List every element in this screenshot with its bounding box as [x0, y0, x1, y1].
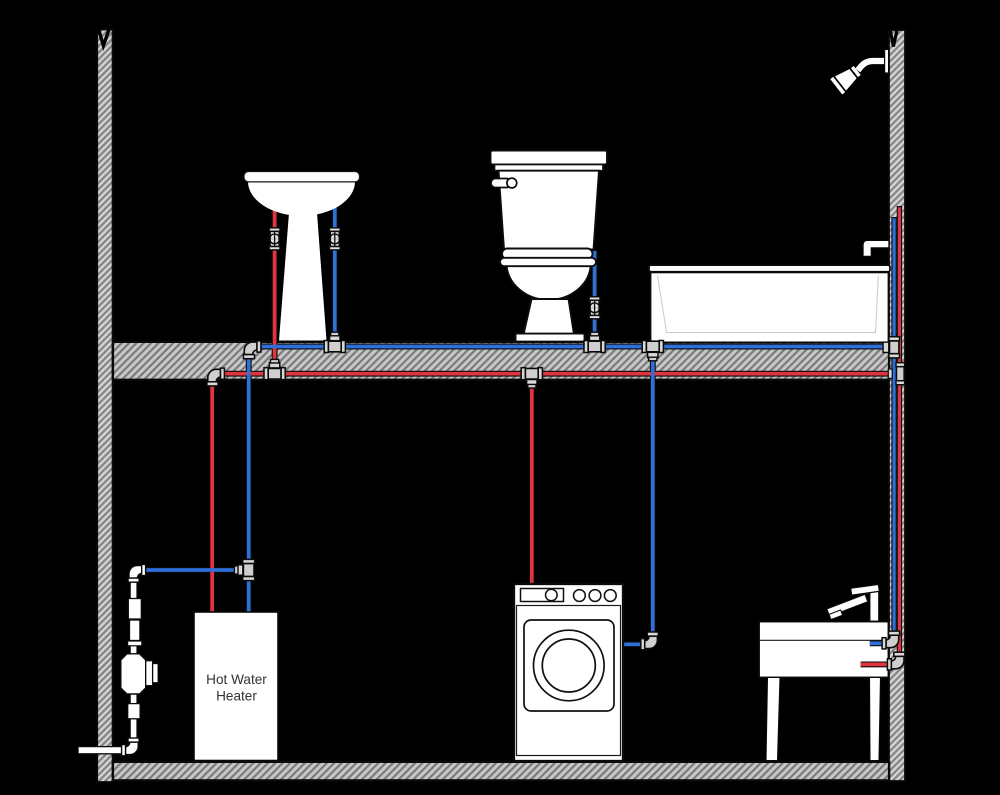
svg-text:Hot Water: Hot Water	[206, 672, 267, 687]
svg-text:Heater: Heater	[216, 689, 257, 704]
